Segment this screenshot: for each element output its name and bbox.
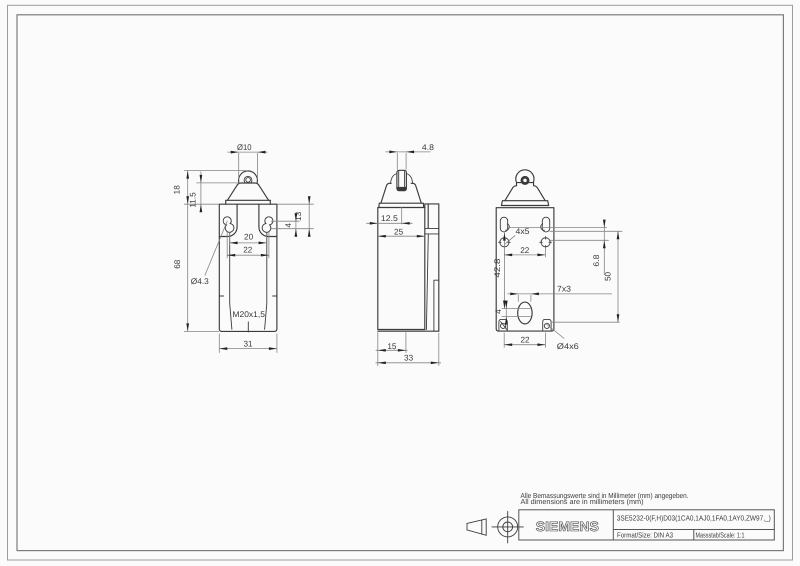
svg-text:4: 4 <box>284 223 293 228</box>
svg-text:Ø4.3: Ø4.3 <box>191 277 209 286</box>
svg-text:33: 33 <box>404 353 414 362</box>
svg-text:31: 31 <box>243 339 253 348</box>
svg-text:22: 22 <box>520 246 530 255</box>
svg-text:Massstab/Scale: 1:1: Massstab/Scale: 1:1 <box>696 530 745 539</box>
svg-text:Format/Size: DIN A3: Format/Size: DIN A3 <box>617 530 673 539</box>
svg-text:All dimensions are in millimet: All dimensions are in millimeters (mm) <box>521 497 644 506</box>
svg-text:7x3: 7x3 <box>557 285 571 294</box>
svg-text:SIEMENS: SIEMENS <box>536 519 599 534</box>
svg-text:18: 18 <box>172 185 181 195</box>
svg-text:50: 50 <box>604 272 613 282</box>
svg-text:11.5: 11.5 <box>188 192 197 208</box>
svg-text:42.8: 42.8 <box>493 258 502 278</box>
svg-text:25: 25 <box>394 228 404 237</box>
svg-text:6.8: 6.8 <box>592 254 601 266</box>
svg-text:68: 68 <box>173 259 182 269</box>
svg-text:3SE5232-0(F,H)D03(1CA0,1AJ0,1F: 3SE5232-0(F,H)D03(1CA0,1AJ0,1FA0,1AY0,ZW… <box>617 514 771 523</box>
svg-text:22: 22 <box>520 336 530 345</box>
svg-text:20: 20 <box>244 233 254 242</box>
svg-text:Ø4x6: Ø4x6 <box>557 342 579 351</box>
svg-text:15: 15 <box>387 342 397 351</box>
svg-text:4.8: 4.8 <box>422 143 434 152</box>
svg-text:4: 4 <box>494 309 503 314</box>
svg-text:Ø10: Ø10 <box>237 143 252 152</box>
svg-text:22: 22 <box>243 246 253 255</box>
svg-text:M20x1,5: M20x1,5 <box>232 310 265 319</box>
svg-text:4x5: 4x5 <box>516 227 530 236</box>
svg-text:12.5: 12.5 <box>381 214 398 223</box>
